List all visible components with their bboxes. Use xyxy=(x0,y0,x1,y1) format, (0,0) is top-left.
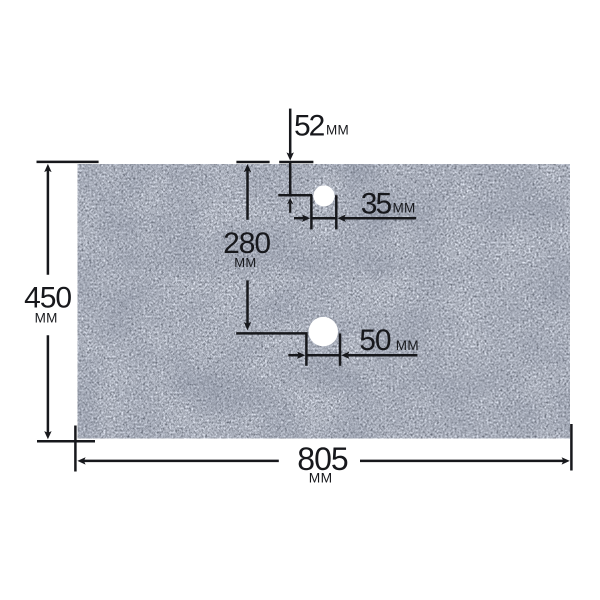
svg-text:52: 52 xyxy=(294,109,325,142)
svg-text:MM: MM xyxy=(309,471,333,486)
svg-text:MM: MM xyxy=(393,201,416,216)
svg-text:MM: MM xyxy=(326,123,349,138)
svg-text:50: 50 xyxy=(359,324,391,357)
svg-text:MM: MM xyxy=(396,338,419,353)
svg-text:MM: MM xyxy=(234,255,256,270)
svg-text:35: 35 xyxy=(361,187,392,220)
svg-text:MM: MM xyxy=(35,311,58,326)
